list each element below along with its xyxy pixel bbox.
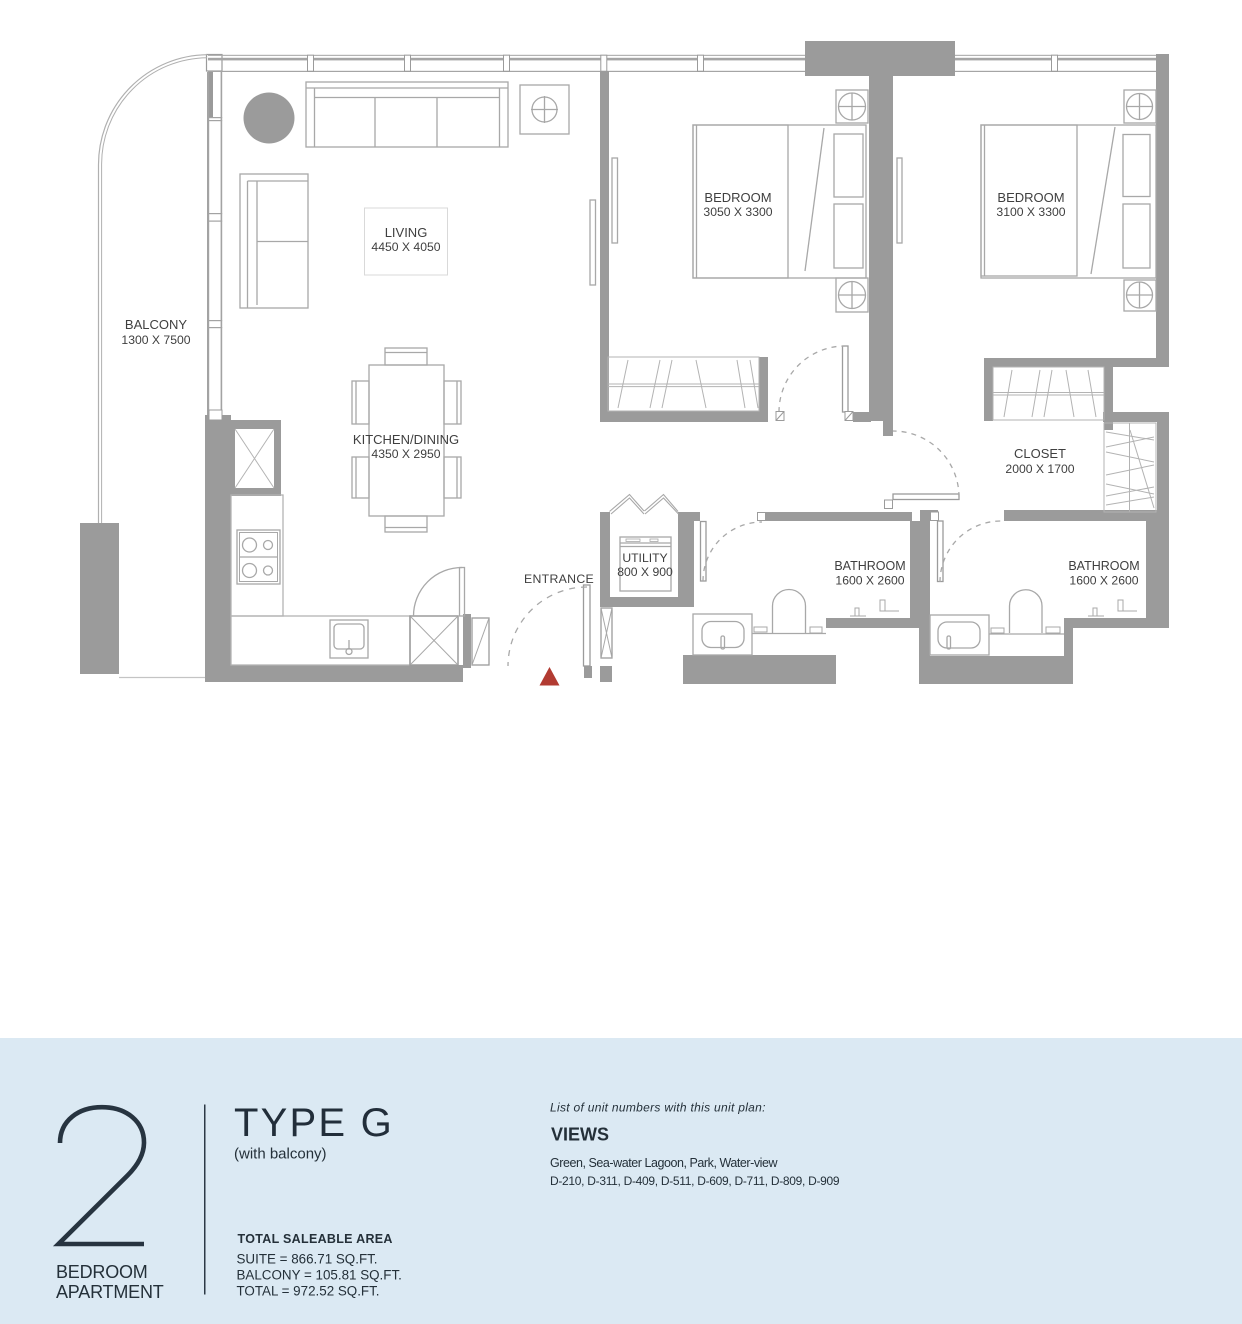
svg-text:3050 X 3300: 3050 X 3300 bbox=[703, 205, 772, 219]
svg-text:BALCONY: BALCONY bbox=[125, 317, 187, 332]
svg-text:UTILITY: UTILITY bbox=[622, 551, 667, 565]
svg-text:BALCONY = 105.81 SQ.FT.: BALCONY = 105.81 SQ.FT. bbox=[237, 1268, 402, 1283]
svg-text:4450 X 4050: 4450 X 4050 bbox=[371, 240, 440, 254]
svg-text:TOTAL = 972.52 SQ.FT.: TOTAL = 972.52 SQ.FT. bbox=[237, 1284, 380, 1299]
svg-text:BEDROOM: BEDROOM bbox=[704, 190, 771, 205]
svg-text:BEDROOM: BEDROOM bbox=[997, 190, 1064, 205]
svg-text:SUITE = 866.71 SQ.FT.: SUITE = 866.71 SQ.FT. bbox=[237, 1252, 378, 1267]
svg-text:KITCHEN/DINING: KITCHEN/DINING bbox=[353, 432, 459, 447]
svg-text:TYPE G: TYPE G bbox=[234, 1101, 394, 1145]
svg-text:D-210, D-311, D-409, D-511, D-: D-210, D-311, D-409, D-511, D-609, D-711… bbox=[550, 1174, 840, 1188]
svg-text:List of unit numbers with this: List of unit numbers with this unit plan… bbox=[550, 1101, 766, 1115]
svg-text:3100 X 3300: 3100 X 3300 bbox=[996, 205, 1065, 219]
svg-text:(with balcony): (with balcony) bbox=[234, 1146, 327, 1163]
svg-text:LIVING: LIVING bbox=[385, 225, 428, 240]
svg-text:1600 X 2600: 1600 X 2600 bbox=[835, 574, 904, 588]
svg-text:800 X 900: 800 X 900 bbox=[617, 565, 673, 579]
svg-text:2000 X 1700: 2000 X 1700 bbox=[1005, 462, 1074, 476]
svg-text:VIEWS: VIEWS bbox=[551, 1125, 609, 1145]
svg-text:Green, Sea-water Lagoon, Park,: Green, Sea-water Lagoon, Park, Water-vie… bbox=[550, 1156, 778, 1170]
svg-text:APARTMENT: APARTMENT bbox=[56, 1282, 164, 1302]
svg-text:ENTRANCE: ENTRANCE bbox=[524, 572, 594, 586]
svg-text:TOTAL SALEABLE AREA: TOTAL SALEABLE AREA bbox=[238, 1232, 393, 1246]
svg-text:BATHROOM: BATHROOM bbox=[834, 559, 905, 573]
svg-text:BATHROOM: BATHROOM bbox=[1068, 559, 1139, 573]
svg-text:1300 X 7500: 1300 X 7500 bbox=[121, 333, 190, 347]
svg-text:4350 X 2950: 4350 X 2950 bbox=[371, 447, 440, 461]
svg-text:1600 X 2600: 1600 X 2600 bbox=[1069, 574, 1138, 588]
svg-text:BEDROOM: BEDROOM bbox=[56, 1262, 148, 1282]
svg-text:CLOSET: CLOSET bbox=[1014, 446, 1066, 461]
